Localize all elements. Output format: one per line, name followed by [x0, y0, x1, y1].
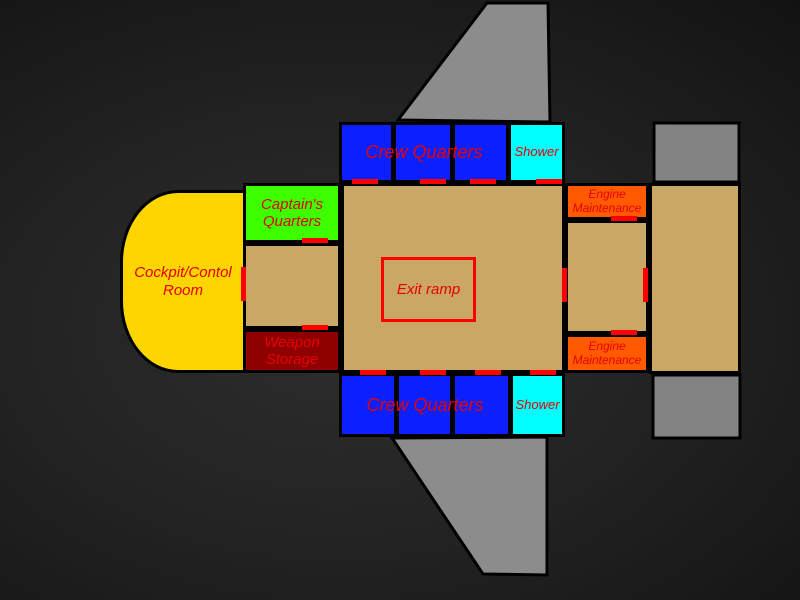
door-marker	[420, 370, 446, 375]
door-marker	[536, 179, 562, 184]
door-marker	[611, 216, 637, 221]
cockpit-label-line2: Room	[163, 282, 203, 299]
weapon-storage-label-line2: Storage	[266, 351, 319, 368]
room-rear-hold	[649, 183, 741, 374]
cockpit-label-line1: Cockpit/Contol	[134, 264, 232, 281]
door-marker	[360, 370, 386, 375]
room-engine-corridor	[565, 220, 649, 334]
room-crew-quarters-bottom-3	[452, 373, 511, 437]
spaceship-floor-plan: Cockpit/Contol Room Captain's Quarters W…	[0, 0, 800, 600]
door-marker	[475, 370, 501, 375]
engine-maintenance-bottom-label-line2: Maintenance	[573, 354, 642, 368]
door-marker	[611, 330, 637, 335]
door-marker	[420, 179, 446, 184]
shower-bottom-label: Shower	[515, 398, 559, 413]
door-marker	[470, 179, 496, 184]
engine-block-top-right	[654, 123, 739, 182]
door-marker	[643, 268, 648, 302]
exit-ramp-outline: Exit ramp	[381, 257, 476, 322]
room-captains-quarters: Captain's Quarters	[243, 183, 341, 243]
wing-top	[398, 3, 550, 122]
room-crew-quarters-bottom-2	[396, 373, 453, 437]
wing-bottom	[392, 437, 547, 575]
room-engine-maintenance-top: Engine Maintenance	[565, 183, 649, 220]
door-marker	[241, 267, 246, 301]
room-shower-bottom: Shower	[510, 373, 565, 437]
room-crew-quarters-top-1	[339, 122, 394, 183]
room-cockpit-control: Cockpit/Contol Room	[120, 190, 246, 373]
engine-maintenance-top-label-line2: Maintenance	[573, 202, 642, 216]
room-shower-top: Shower	[508, 122, 565, 183]
engine-maintenance-bottom-label-line1: Engine	[588, 340, 625, 354]
door-marker	[302, 238, 328, 243]
captains-quarters-label-line2: Quarters	[263, 213, 321, 230]
captains-quarters-label-line1: Captain's	[261, 196, 323, 213]
room-crew-quarters-top-2	[393, 122, 453, 183]
exit-ramp-label: Exit ramp	[397, 281, 460, 298]
engine-maintenance-top-label-line1: Engine	[588, 188, 625, 202]
room-weapon-storage: Weapon Storage	[243, 329, 341, 373]
room-crew-quarters-top-3	[452, 122, 509, 183]
shower-top-label: Shower	[514, 145, 558, 160]
engine-block-bottom-right	[653, 375, 740, 438]
room-engine-maintenance-bottom: Engine Maintenance	[565, 334, 649, 373]
room-crew-quarters-bottom-1	[339, 373, 397, 437]
door-marker	[302, 325, 328, 330]
weapon-storage-label-line1: Weapon	[264, 334, 320, 351]
door-marker	[530, 370, 556, 375]
room-left-corridor	[243, 243, 341, 329]
door-marker	[562, 268, 567, 302]
door-marker	[352, 179, 378, 184]
